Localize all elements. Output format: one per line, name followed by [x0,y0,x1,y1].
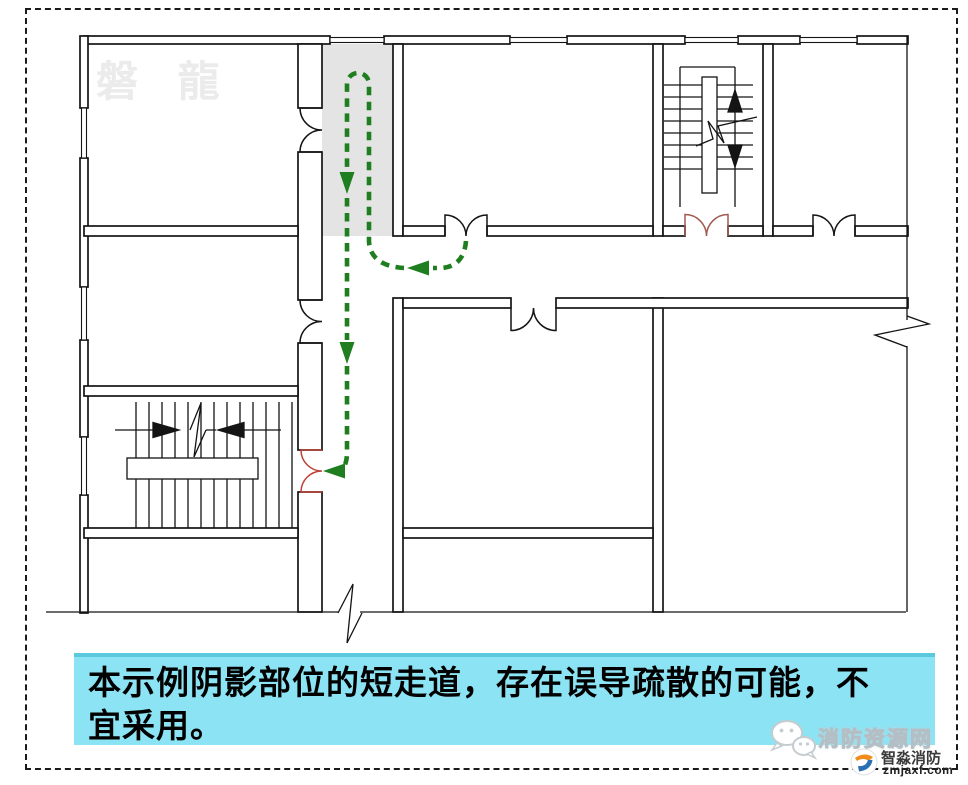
screenshot-stage: 磐 龍 [0,0,968,785]
wall-break-icon [338,584,362,643]
left-stair-break-icon [190,403,206,457]
wechat-icon [766,718,820,762]
top-staircase [664,67,757,207]
route-arrow-west-icon [323,464,345,479]
zhimiao-logo-icon [850,748,878,776]
left-stair-landing [127,458,258,479]
section-lines [46,36,929,643]
left-staircase [115,402,292,528]
caption-line-1: 本示例阴影部位的短走道，存在误导疏散的可能，不 [88,661,935,704]
door-middle-left-room [300,300,322,343]
door-top-right-room [813,215,855,236]
top-stair-landing [702,77,717,193]
stair-direction-arrow-icon [218,423,244,438]
wall-break-icon [875,316,929,347]
door-top-middle-room [445,215,487,236]
stair-direction-arrow-icon [728,145,742,167]
company-domain: zmjaxf.com [883,763,953,777]
route-arrow-west-icon [407,261,429,276]
door-top-stair [685,215,728,237]
door-left-stair-exit [301,450,322,492]
stair-direction-arrow-icon [728,90,742,112]
door-top-left-room [300,108,322,152]
door-bottom-center-room [511,308,556,331]
shaded-short-corridor [322,44,393,236]
route-arrow-down-icon [340,342,355,364]
walls [80,36,908,613]
